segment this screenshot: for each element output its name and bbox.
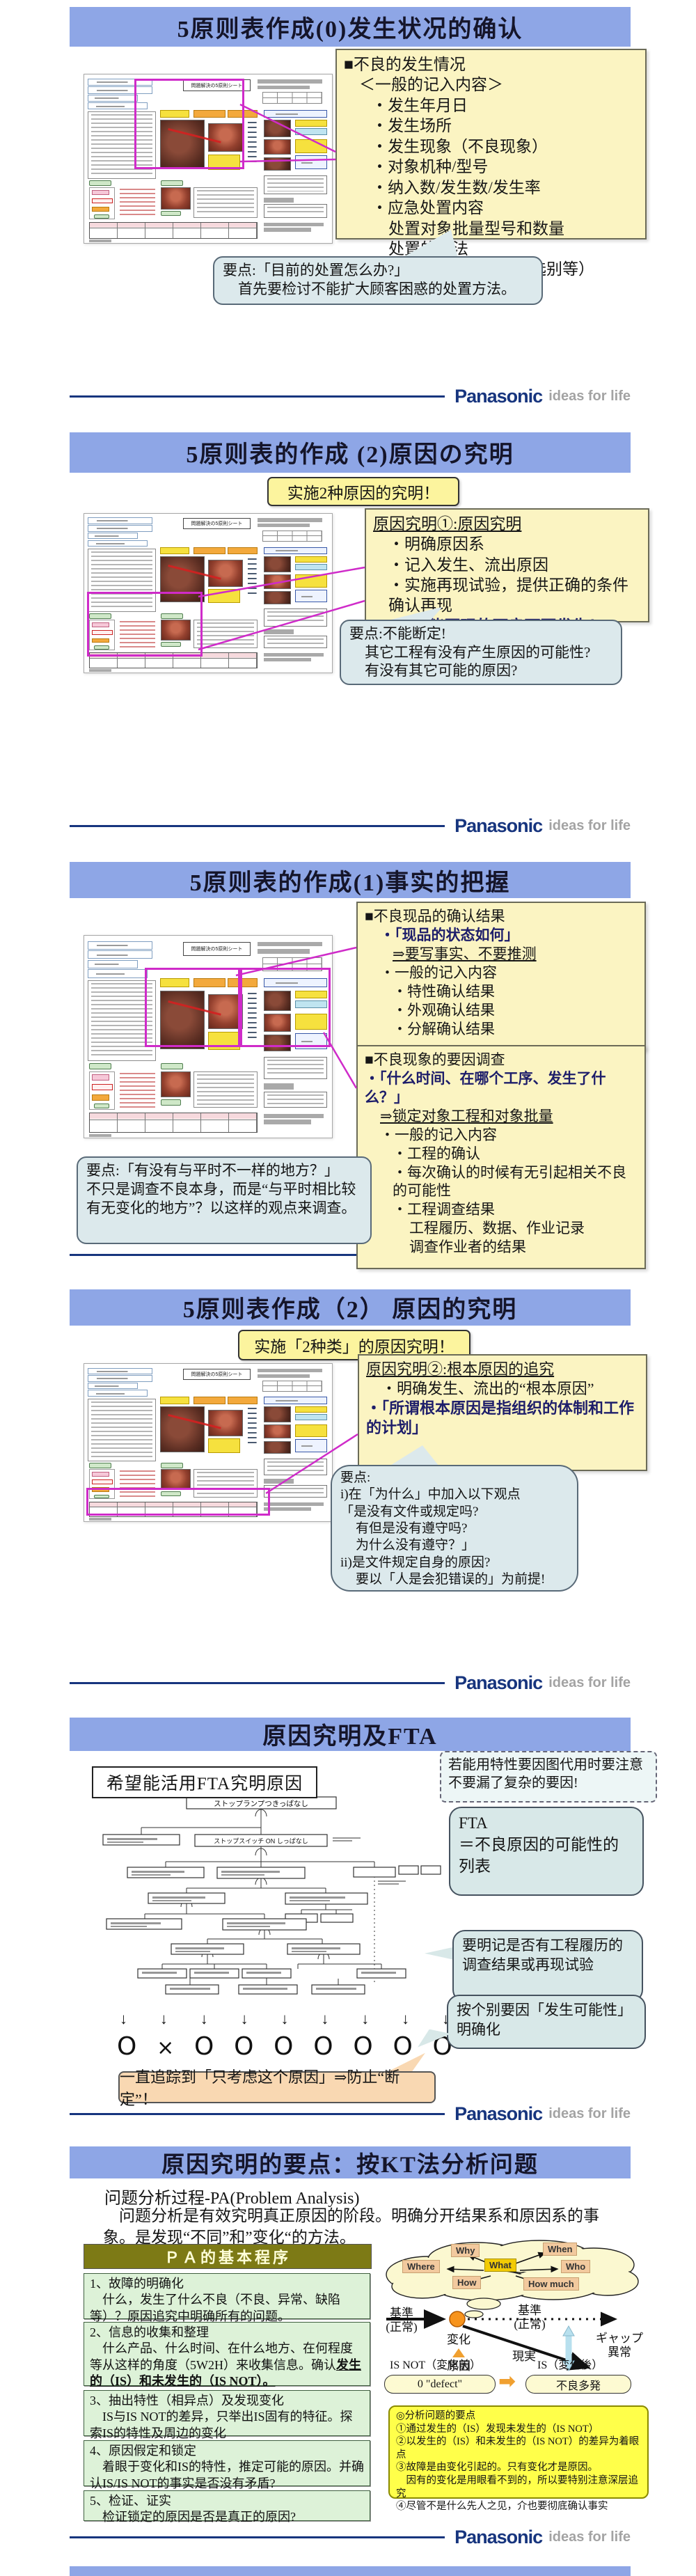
form-fp2 xyxy=(208,1410,243,1436)
panasonic-logo: Panasonic xyxy=(454,2103,542,2125)
form-fbx xyxy=(264,636,327,648)
banner: 实施2种原因的究明！ xyxy=(267,477,459,506)
form-fcy xyxy=(295,128,327,135)
point-line: ①通过发生的（IS）发现未发生的（IS NOT） xyxy=(396,2423,641,2436)
form-fp2 xyxy=(208,560,243,587)
form-fo xyxy=(92,207,109,212)
form-fl xyxy=(258,518,322,521)
step-body: IS与IS NOT的差异，只举出IS固有的特征。探索IS的特性及周边的变化 xyxy=(90,2410,353,2440)
box-line: ⇒锁定对象工程和对象批量 xyxy=(365,1107,638,1126)
form-fc xyxy=(88,517,152,524)
form-fo xyxy=(228,1397,258,1404)
fta-callout: FTA ＝不良原因的可能性的列表 xyxy=(449,1807,644,1896)
form-fl xyxy=(264,653,323,657)
keypoint-callout: 要点:不能断定! 其它工程有没有产生原因的可能性? 有没有其它可能的原因? xyxy=(340,620,622,685)
slide6-title: 原因究明的要点：按KT法分析问题 xyxy=(161,2146,539,2179)
step-body: 检证锁定的原因是否是真正的原因? xyxy=(90,2510,296,2524)
logo-tagline: ideas for life xyxy=(548,818,631,834)
defect-info-box: ■不良的发生情况 ＜一般的记入内容＞ ・发生年月日 ・发生场所 ・发生现象（不良… xyxy=(335,49,647,239)
down-arrow-icon: ↓ xyxy=(281,2010,289,2028)
form-fl xyxy=(264,1502,323,1506)
box-line: ・「现品的状态如何」 xyxy=(365,926,638,945)
form-fl xyxy=(258,79,322,83)
slide-1: 5原则表作成(0)发生状况的确认 問題解決の5原則シート ■不良的发生情况 ＜一… xyxy=(0,0,696,430)
pa-step-1: 1、故障的明确化 什么，发生了什么不良（不良、异常、缺陷等）？原因追究中明确所有… xyxy=(84,2273,370,2319)
block-arrow-icon: ➡ xyxy=(498,2369,516,2394)
pa-header: ＰＡ的基本程序 xyxy=(84,2244,372,2269)
form-fl xyxy=(89,669,111,671)
reality-label: 現実 xyxy=(512,2350,536,2364)
result-mark: O xyxy=(117,2032,136,2061)
callout-line: 其它工程有没有产生原因的可能性? xyxy=(349,643,612,662)
slide5-title: 原因究明及FTA xyxy=(262,1717,437,1751)
form-fgr xyxy=(89,1063,111,1069)
form-fcol xyxy=(193,187,258,218)
form-fg4 xyxy=(262,1381,322,1392)
result-mark: × xyxy=(157,2032,174,2061)
callout-line: 要以「人是会犯错误的」为前提! xyxy=(340,1571,569,1588)
slide1-title-bar: 5原则表作成(0)发生状况的确认 xyxy=(70,7,631,47)
down-arrow-row: ↓↓↓↓↓↓↓↓↓ xyxy=(120,2010,450,2028)
slide1-title: 5原则表作成(0)发生状况的确认 xyxy=(177,10,523,44)
box-line: ■不良现品的确认结果 xyxy=(365,907,638,926)
form-fl xyxy=(89,1134,111,1137)
result-mark-row: O×OOOOOOO xyxy=(117,2032,452,2061)
info-line: ・对象机种/型号 xyxy=(344,157,638,177)
form-fc xyxy=(88,950,152,959)
form-fcol xyxy=(193,1071,258,1108)
form-fbx xyxy=(264,204,327,217)
form-fcol xyxy=(193,620,258,648)
cloud-who: Who xyxy=(561,2260,590,2273)
form-fbx xyxy=(264,1459,327,1476)
form-fl xyxy=(264,198,294,203)
base-left-label: 基準 (正常) xyxy=(380,2307,423,2334)
form-fp2 xyxy=(161,1071,191,1098)
form-fp2 xyxy=(161,1469,191,1489)
point-line: ③故障是由变化引起的。只有变化才是原因。 xyxy=(396,2461,641,2474)
box-line: ・记入发生、流出原因 xyxy=(373,555,641,575)
form-fbx xyxy=(264,175,327,194)
cloud-where: Where xyxy=(402,2260,440,2273)
is-label: IS（変化後） xyxy=(537,2359,603,2372)
callout-line: 有没有其它可能的原因? xyxy=(349,661,612,680)
box-heading: 原因究明①:原因究明 xyxy=(373,514,641,534)
result-mark: O xyxy=(234,2032,253,2061)
footer-rule xyxy=(70,2113,445,2115)
slide3-title: 5原则表的作成(1)事实的把握 xyxy=(190,863,511,897)
fta-second-event: ストップスイッチ ON しっぱなし xyxy=(214,1837,308,1844)
step-heading: 3、抽出特性（相异点）及发现变化 xyxy=(90,2393,364,2409)
pa-step-5: 5、检证、证实 检证锁定的原因是否是真正的原因? xyxy=(84,2490,370,2521)
slide-4: 5原则表作成（2） 原因的究明 实施「2种类」的原因究明！ 問題解決の5原則シー… xyxy=(0,1288,696,1718)
info-line: ■不良的发生情况 xyxy=(344,54,638,74)
form-fy xyxy=(160,547,190,554)
box-line: ・分解确认结果 xyxy=(365,1020,638,1039)
footer-rule xyxy=(70,395,445,398)
callout-line: 要点: xyxy=(340,1470,569,1486)
form-fl xyxy=(258,949,310,953)
box-line: ⇒要写事实、不要推测 xyxy=(365,945,638,964)
slide4-title-bar: 5原则表作成（2） 原因的究明 xyxy=(70,1289,631,1326)
down-arrow-icon: ↓ xyxy=(321,2010,329,2028)
form-fp2 xyxy=(264,139,291,155)
box-line: ・外观确认结果 xyxy=(365,1001,638,1020)
keypoint-callout: 要点: i)在「为什么」中加入以下观点 「是没有文件或规定吗? 有但是没有遵守吗… xyxy=(331,1465,578,1592)
form-fc xyxy=(88,540,147,547)
callout-line: 要点:「有没有与平时不一样的地方？」 xyxy=(86,1161,362,1180)
form-fp1 xyxy=(264,591,291,604)
highlight-box xyxy=(240,968,331,1047)
form-fy xyxy=(295,120,327,127)
down-arrow-icon: ↓ xyxy=(361,2010,369,2028)
callout-line: 要点:不能断定! xyxy=(349,625,612,643)
step-heading: 2、信息的收集和整理 xyxy=(90,2325,364,2341)
cloud-how: How xyxy=(452,2276,481,2289)
info-line: ・发生现象（不良现象） xyxy=(344,136,638,157)
form-fcy xyxy=(295,1414,327,1420)
box-line: ・一般的记入内容 xyxy=(365,1126,638,1145)
form-fgr xyxy=(94,214,109,219)
form-fl xyxy=(258,86,310,89)
form-fp2 xyxy=(264,574,291,589)
form-fgr xyxy=(94,1104,109,1108)
form-fc xyxy=(88,969,147,977)
form-fo xyxy=(193,1397,226,1404)
form-fgr xyxy=(89,1463,111,1468)
form-title: 問題解決の5原則シート xyxy=(183,518,250,529)
form-fcol xyxy=(88,1399,156,1461)
form-fbx xyxy=(264,1057,327,1079)
down-arrow-icon: ↓ xyxy=(160,2010,168,2028)
logo-tagline: ideas for life xyxy=(548,388,631,405)
cause-box: 原因究明①:原因究明 ・明确原因系 ・记入发生、流出原因 ・实施再现试验，提供正… xyxy=(365,508,649,622)
box-line: 工程履历、数据、作业记录 xyxy=(365,1219,638,1238)
box-line: ・一般的记入内容 xyxy=(365,964,638,982)
footer-logo: Panasonic ideas for life xyxy=(70,1672,631,1694)
callout-line: 「是没有文件或规定吗? xyxy=(340,1504,569,1521)
form-fl xyxy=(89,239,111,242)
box-line: ・「所谓根本原因是指组织的体制和工作的计划」 xyxy=(366,1399,639,1438)
footer-rule xyxy=(70,2536,445,2538)
form-fb xyxy=(295,1439,327,1452)
down-arrow-icon: ↓ xyxy=(120,2010,127,2028)
info-line: ・应急处置内容 xyxy=(344,198,638,218)
form-fcy xyxy=(295,564,327,570)
form-ftab xyxy=(89,1113,258,1133)
box-line: ・工程调查结果 xyxy=(365,1200,638,1219)
slide5-title-bar: 原因究明及FTA xyxy=(70,1718,631,1751)
form-fgr xyxy=(161,1463,183,1468)
isnot-pill: 0 "defect" xyxy=(384,2375,496,2394)
step-heading: 1、故障的明确化 xyxy=(90,2276,364,2292)
form-fy xyxy=(208,589,240,604)
form-fl xyxy=(258,1374,310,1378)
is-pill: 不良多発 xyxy=(525,2375,631,2394)
callout-line: 不只是调查不良本身，而是“与平时相比较有无变化的地方”？以这样的观点来调查。 xyxy=(86,1180,362,1218)
form-fl xyxy=(258,1369,322,1372)
form-frd2 xyxy=(92,198,113,203)
panasonic-logo: Panasonic xyxy=(454,1672,542,1694)
form-fbx xyxy=(264,608,327,626)
record-callout: 要明记是否有工程履历的调查结果或再现试验 xyxy=(452,1930,643,2002)
form-fl xyxy=(264,1114,323,1118)
box-line: ・每次确认的时候有无引起相关不良的可能性 xyxy=(365,1163,638,1201)
highlight-box xyxy=(145,968,240,1047)
box-line: ・工程的确认 xyxy=(365,1145,638,1163)
cloud-why: Why xyxy=(451,2244,480,2257)
form-fl xyxy=(264,223,323,226)
form-fy xyxy=(208,1438,240,1452)
form-fcolr xyxy=(118,1071,157,1110)
form-fpk xyxy=(92,1472,109,1477)
result-mark: O xyxy=(194,2032,214,2061)
form-fp1 xyxy=(264,1406,291,1422)
footer-rule xyxy=(70,1682,445,1684)
form-fpk xyxy=(92,1074,109,1081)
form-fp1 xyxy=(160,1406,205,1452)
logo-tagline: ideas for life xyxy=(548,1675,631,1691)
box-line: 调查作业者的结果 xyxy=(365,1238,638,1257)
highlight-box xyxy=(134,79,244,169)
callout-line: i)在「为什么」中加入以下观点 xyxy=(340,1486,569,1503)
form-fy xyxy=(160,1397,190,1404)
form-ftab xyxy=(89,222,258,239)
box-line: ■不良现象的要因调查 xyxy=(365,1051,638,1069)
form-fl xyxy=(264,1120,311,1124)
form-fc xyxy=(88,533,137,540)
base-right-label: 基準 (正常) xyxy=(507,2304,553,2331)
form-fg4 xyxy=(262,531,322,542)
keypoint-callout: 要点:「目前的处置怎么办?」 首先要检讨不能扩大顾客困惑的处置方法。 xyxy=(213,256,543,305)
slide3-title-bar: 5原则表的作成(1)事实的把握 xyxy=(70,862,631,898)
panasonic-logo: Panasonic xyxy=(454,2527,542,2548)
box-line: ・明确发生、流出的“根本原因” xyxy=(366,1379,639,1399)
form-fc xyxy=(88,1383,137,1389)
callout-line: 为什么没有遵守？」 xyxy=(340,1537,569,1554)
down-arrow-icon: ↓ xyxy=(402,2010,409,2028)
form-fgr xyxy=(161,211,180,216)
form-fdots xyxy=(244,556,260,597)
form-fdots xyxy=(244,120,260,164)
keypoint-callout: 要点:「有没有与平时不一样的地方？」 不只是调查不良本身，而是“与平时相比较有无… xyxy=(77,1156,372,1244)
form-fpk xyxy=(92,190,109,195)
gap-label: ギャップ 異常 xyxy=(596,2332,643,2359)
form-fc xyxy=(88,960,137,968)
form-fbx xyxy=(264,1485,327,1498)
footer-logo: Panasonic ideas for life xyxy=(70,2527,631,2548)
box-line: ・特性确认结果 xyxy=(365,982,638,1001)
cloud-what: What xyxy=(484,2259,516,2272)
up-arrow-icon xyxy=(452,2348,465,2357)
presentation-page: 5原则表作成(0)发生状况的确认 問題解決の5原則シート ■不良的发生情况 ＜一… xyxy=(0,0,696,2576)
form-fl xyxy=(264,629,294,634)
info-line: ・发生年月日 xyxy=(344,95,638,116)
highlight-box xyxy=(87,592,203,657)
cloud-when: When xyxy=(543,2243,577,2256)
form-fg4 xyxy=(262,92,322,104)
form-fb xyxy=(295,155,327,168)
slide-5: 原因究明及FTA 希望能活用FTA究明原因 若能用特性要因图代用时要注意不要漏了… xyxy=(0,1718,696,2147)
slide-2: 5原则表的作成 (2)原因の究明 实施2种原因的究明！ 問題解決の5原則シート … xyxy=(0,430,696,859)
form-fp2 xyxy=(161,187,191,209)
form-fb xyxy=(295,590,327,602)
info-line: ＜一般的记入内容＞ xyxy=(344,74,638,95)
form-fl xyxy=(264,658,311,661)
slide4-title: 5原则表作成（2） 原因的究明 xyxy=(183,1290,518,1324)
callout-line: 首先要检讨不能扩大顾客困惑的处置方法。 xyxy=(223,280,533,299)
slide-3: 5原则表的作成(1)事实的把握 問題解決の5原則シート ■不良现品的确认结果 ・… xyxy=(0,858,696,1288)
form-fl xyxy=(258,942,322,946)
form-fc xyxy=(88,1368,152,1374)
result-mark: O xyxy=(353,2032,372,2061)
step-heading: 5、检证、证实 xyxy=(90,2493,364,2509)
form-fc xyxy=(88,1375,152,1381)
result-mark: O xyxy=(274,2032,293,2061)
form-fp2 xyxy=(264,1424,291,1438)
form-fgr xyxy=(89,180,111,186)
form-fy xyxy=(295,574,327,587)
cloud-howmuch: How much xyxy=(523,2277,579,2291)
fta-top-event: ストップランプつきっぱなし xyxy=(214,1800,308,1808)
form-fl xyxy=(264,1479,294,1484)
logo-tagline: ideas for life xyxy=(548,2529,631,2545)
form-fb xyxy=(264,110,327,118)
result-mark: O xyxy=(313,2032,333,2061)
point-line: ④尽管不是什么先人之见，介也要彻底确认事实 xyxy=(396,2500,641,2513)
step-body: 着眼于变化和IS的特性，推定可能的原因。并确认IS/IS NOT的事实是否没有矛… xyxy=(90,2460,364,2490)
down-arrow-icon: ↓ xyxy=(241,2010,248,2028)
box-heading: 原因究明②:根本原因的追究 xyxy=(366,1360,639,1379)
survey-box: ■不良现象的要因调查 ・「什么时间、在哪个工序、发生了什么？」 ⇒锁定对象工程和… xyxy=(356,1045,646,1269)
root-cause-box: 原因究明②:根本原因的追究 ・明确发生、流出的“根本原因” ・「所谓根本原因是指… xyxy=(358,1354,647,1471)
logo-tagline: ideas for life xyxy=(548,2106,631,2122)
form-fc xyxy=(88,95,137,102)
form-fp1 xyxy=(264,556,291,572)
panasonic-logo: Panasonic xyxy=(454,815,542,837)
change-label: 変化 xyxy=(447,2333,470,2347)
form-fl xyxy=(264,228,311,231)
headline-box: 希望能活用FTA究明原因 xyxy=(92,1766,317,1798)
form-fc xyxy=(88,525,152,532)
panasonic-logo: Panasonic xyxy=(454,386,542,407)
form-fp1 xyxy=(264,1441,291,1454)
form-fcolr xyxy=(118,187,157,219)
form-fb xyxy=(264,1397,327,1404)
slide2-title: 5原则表的作成 (2)原因の究明 xyxy=(186,435,514,469)
form-frd2 xyxy=(92,1479,113,1484)
form-fy xyxy=(295,556,327,563)
slide6-title-bar: 原因究明的要点：按KT法分析问题 xyxy=(70,2146,631,2178)
result-mark: O xyxy=(393,2032,412,2061)
result-box: ■不良现品的确认结果 ・「现品的状态如何」 ⇒要写事实、不要推测 ・一般的记入内… xyxy=(356,902,646,1051)
form-fc xyxy=(88,941,152,950)
pa-step-4: 4、原因假定和锁定 着眼于变化和IS的特性，推定可能的原因。并确认IS/IS N… xyxy=(84,2440,370,2486)
footer-logo: Panasonic ideas for life xyxy=(70,386,631,407)
form-fl xyxy=(264,1507,311,1511)
factor-callout: 按个别要因「发生可能性」明确化 xyxy=(447,1995,646,2049)
slide-6: 原因究明的要点：按KT法分析问题 问题分析过程-PA(Problem Analy… xyxy=(0,2146,696,2576)
trace-note-box: 一直追踪到「只考虑这个原因」⇒防止“断定”！ xyxy=(118,2071,436,2103)
highlight-box xyxy=(86,1488,270,1516)
form-fdots xyxy=(244,1406,260,1447)
caution-note: 若能用特性要因图代用时要注意不要漏了复杂的要因! xyxy=(440,1751,657,1803)
form-fc xyxy=(88,1390,147,1396)
form-fy xyxy=(295,139,327,152)
box-line: ・实施再现试验，提供正确的条件确认再现 xyxy=(373,575,641,616)
footer-rule xyxy=(70,825,445,827)
box-line: ・「什么时间、在哪个工序、发生了什么？」 xyxy=(365,1069,638,1107)
fta-tree-diagram: ストップランプつきっぱなし ストップスイッチ ON しっぱなし xyxy=(82,1796,451,2004)
box-line: ・明确原因系 xyxy=(373,534,641,554)
form-fl xyxy=(264,1083,294,1090)
pa-step-3: 3、抽出特性（相异点）及发现变化 IS与IS NOT的差异，只举出IS固有的特征… xyxy=(84,2390,370,2436)
step-heading: 4、原因假定和锁定 xyxy=(90,2443,364,2459)
callout-line: ii)是文件规定自身的原因? xyxy=(340,1555,569,1571)
next-slide-titlebar-sliver xyxy=(70,2566,631,2576)
form-fp1 xyxy=(264,157,291,171)
down-arrow-icon: ↓ xyxy=(200,2010,208,2028)
form-fl xyxy=(89,1518,111,1520)
form-fo xyxy=(193,547,226,554)
slide2-title-bar: 5原则表的作成 (2)原因の究明 xyxy=(70,432,631,473)
isnot-label: IS NOT（変化前） xyxy=(390,2359,481,2372)
form-frd2 xyxy=(92,1084,113,1090)
step-body: 什么产品、什么时间、在什么地方、在何程度等从这样的角度（5W2H）来收集信息。确… xyxy=(90,2341,353,2371)
pa-step-2: 2、信息的收集和整理 什么产品、什么时间、在什么地方、在何程度等从这样的角度（5… xyxy=(84,2322,370,2386)
form-fl xyxy=(258,524,310,527)
point-line: 因有的变化是用眼看不到的，所以要特别注意深层追究 xyxy=(396,2474,641,2500)
info-line: ・发生场所 xyxy=(344,116,638,136)
form-fo xyxy=(92,1094,109,1101)
step-body: 什么，发生了什么不良（不良、异常、缺陷等）？原因追究中明确所有的问题。 xyxy=(90,2293,340,2323)
info-line: 处置对象批量型号和数量 xyxy=(344,219,638,239)
form-fy xyxy=(295,1406,327,1413)
form-fo xyxy=(228,547,258,554)
point-line: ◎分析问题的要点 xyxy=(396,2410,641,2423)
callout-line: 要点:「目前的处置怎么办?」 xyxy=(223,261,533,280)
form-fy xyxy=(295,1424,327,1437)
form-fgr xyxy=(161,180,183,186)
footer-logo: Panasonic ideas for life xyxy=(70,815,631,837)
info-line: ・纳入数/发生数/发生率 xyxy=(344,178,638,198)
analysis-points-box: ◎分析问题的要点 ①通过发生的（IS）发现未发生的（IS NOT） ②以发生的（… xyxy=(388,2405,649,2499)
form-fgr xyxy=(161,1063,183,1069)
form-fbx xyxy=(264,1092,327,1108)
point-line: ②以发生的（IS）和未发生的（IS NOT）的差异为着眼点 xyxy=(396,2435,641,2461)
callout-line: 有但是没有遵守吗? xyxy=(340,1521,569,1537)
form-title: 問題解決の5原則シート xyxy=(183,942,250,956)
form-fgr xyxy=(161,1099,180,1106)
form-title: 問題解決の5原則シート xyxy=(183,1369,250,1380)
form-fp1 xyxy=(264,120,291,136)
form-fb xyxy=(264,547,327,554)
